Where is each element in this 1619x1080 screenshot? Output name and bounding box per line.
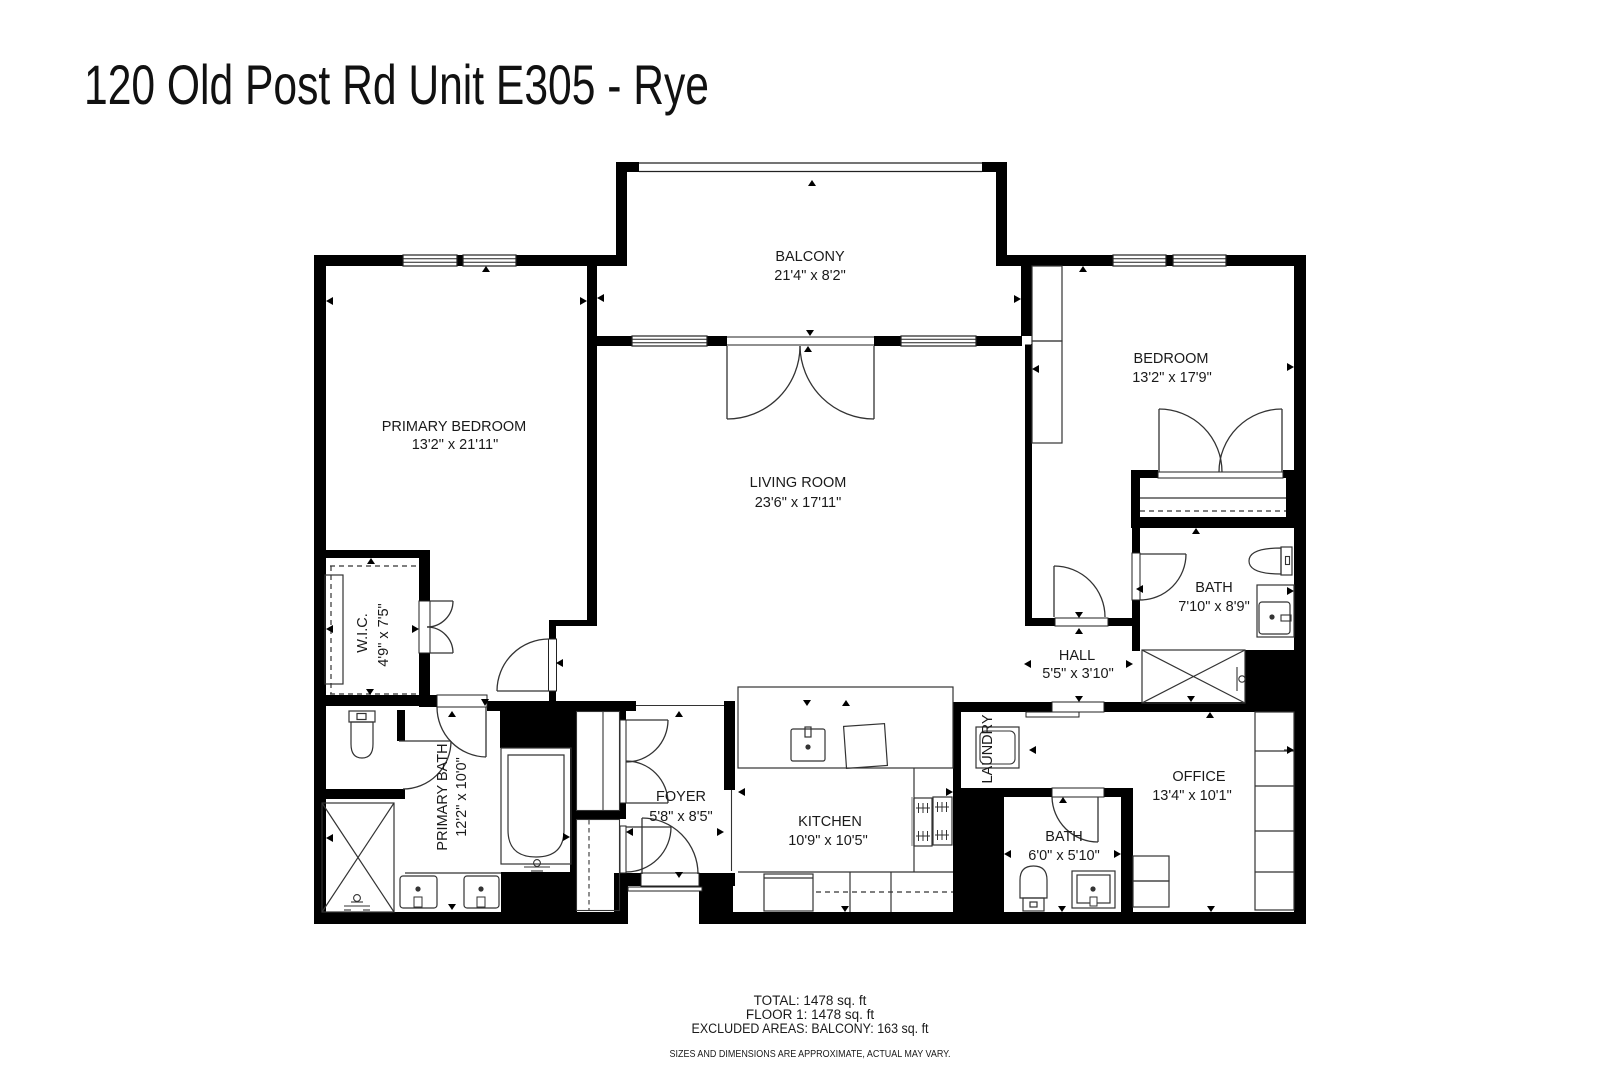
svg-text:PRIMARY BEDROOM: PRIMARY BEDROOM — [382, 419, 527, 435]
svg-text:PRIMARY BATH: PRIMARY BATH — [435, 743, 451, 850]
svg-text:21'4" x 8'2": 21'4" x 8'2" — [774, 268, 845, 284]
svg-text:120 Old Post Rd Unit E305 - Ry: 120 Old Post Rd Unit E305 - Rye — [84, 53, 709, 116]
svg-text:5'8" x 8'5": 5'8" x 8'5" — [649, 809, 712, 825]
svg-text:4'9" x 7'5": 4'9" x 7'5" — [376, 603, 392, 666]
svg-text:5'5" x 3'10": 5'5" x 3'10" — [1042, 666, 1113, 682]
svg-text:KITCHEN: KITCHEN — [798, 814, 862, 830]
svg-text:23'6" x 17'11": 23'6" x 17'11" — [755, 495, 842, 511]
svg-text:LAUNDRY: LAUNDRY — [980, 714, 996, 783]
svg-text:BATH: BATH — [1195, 580, 1233, 596]
svg-text:TOTAL: 1478 sq. ft: TOTAL: 1478 sq. ft — [754, 993, 867, 1008]
svg-text:10'9" x 10'5": 10'9" x 10'5" — [788, 833, 868, 849]
svg-text:BATH: BATH — [1045, 829, 1083, 845]
svg-text:7'10" x 8'9": 7'10" x 8'9" — [1178, 599, 1249, 615]
svg-text:12'2" x 10'0": 12'2" x 10'0" — [454, 757, 470, 837]
svg-text:W.I.C.: W.I.C. — [355, 613, 371, 652]
svg-text:SIZES AND DIMENSIONS ARE APPRO: SIZES AND DIMENSIONS ARE APPROXIMATE, AC… — [670, 1048, 951, 1060]
svg-text:FLOOR 1: 1478 sq. ft: FLOOR 1: 1478 sq. ft — [746, 1007, 875, 1022]
svg-text:EXCLUDED AREAS: BALCONY: 163 s: EXCLUDED AREAS: BALCONY: 163 sq. ft — [692, 1021, 929, 1036]
svg-text:13'2" x 21'11": 13'2" x 21'11" — [412, 437, 499, 453]
svg-text:BALCONY: BALCONY — [775, 249, 845, 265]
svg-text:13'2" x 17'9": 13'2" x 17'9" — [1132, 370, 1212, 386]
svg-text:OFFICE: OFFICE — [1172, 769, 1225, 785]
svg-text:BEDROOM: BEDROOM — [1134, 351, 1209, 367]
svg-text:6'0" x 5'10": 6'0" x 5'10" — [1028, 848, 1099, 864]
svg-text:FOYER: FOYER — [656, 789, 706, 805]
svg-text:13'4" x 10'1": 13'4" x 10'1" — [1152, 788, 1232, 804]
svg-text:LIVING ROOM: LIVING ROOM — [750, 475, 847, 491]
svg-text:HALL: HALL — [1059, 648, 1095, 664]
